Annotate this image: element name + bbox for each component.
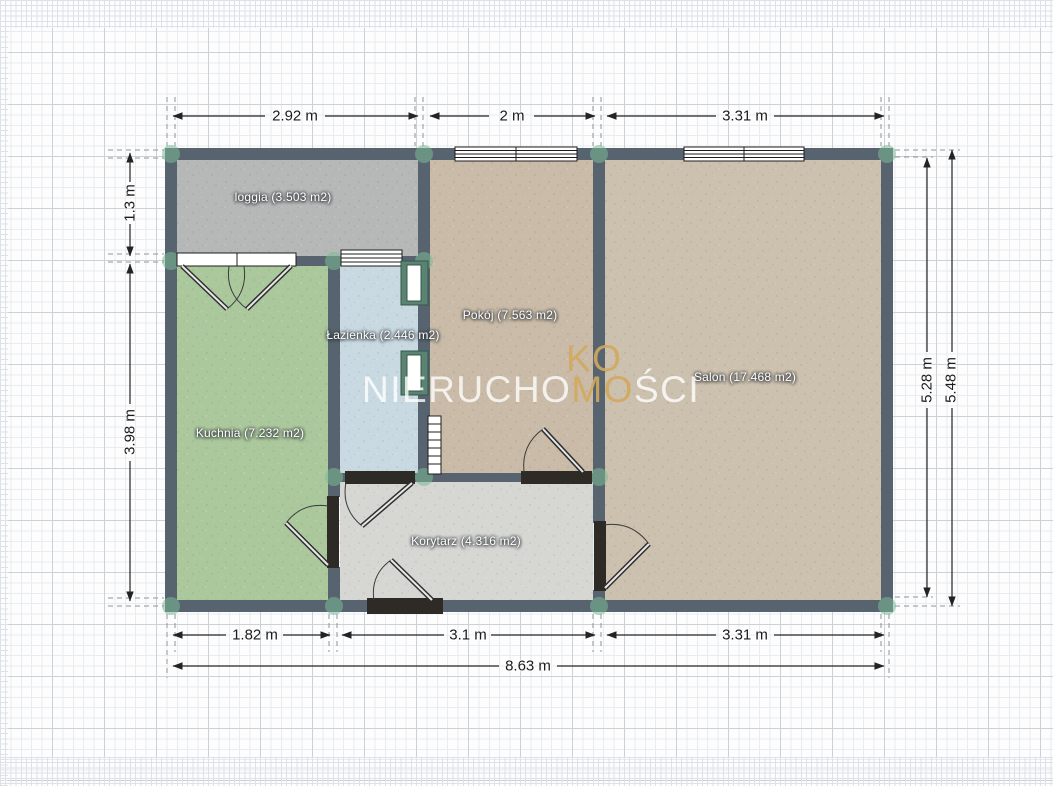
dim-label-left-1: 1.3 m xyxy=(122,184,139,222)
corner-accent xyxy=(325,597,343,615)
corner-accent xyxy=(590,468,608,486)
dim-label-top-1: 2.92 m xyxy=(272,108,318,125)
floorplan-canvas[interactable]: loggia (3.503 m2) Kuchnia (7.232 m2) Łaz… xyxy=(0,0,1053,786)
corner-accent xyxy=(590,145,608,163)
corner-accent xyxy=(162,145,180,163)
dim-label-right-1: 5.28 m xyxy=(919,357,936,403)
wall-outer-right[interactable] xyxy=(881,148,893,612)
dim-label-top-2: 2 m xyxy=(499,108,524,125)
wall-outer-bottom[interactable] xyxy=(165,600,893,612)
corner-accent xyxy=(590,597,608,615)
balcony-door-kuchnia[interactable] xyxy=(177,253,296,266)
window-pokoj-top[interactable] xyxy=(455,147,577,161)
dim-label-total: 8.63 m xyxy=(505,658,551,675)
dim-label-bottom-1: 1.82 m xyxy=(232,627,278,644)
corner-accent xyxy=(162,597,180,615)
corner-accent xyxy=(325,468,343,486)
window-lazienka[interactable] xyxy=(341,250,402,266)
dim-label-right-2: 5.48 m xyxy=(943,357,960,403)
dim-label-bottom-2: 3.1 m xyxy=(449,627,487,644)
dim-label-bottom-3: 3.31 m xyxy=(722,627,768,644)
room-label-pokoj: Pokój (7.563 m2) xyxy=(463,308,558,322)
room-label-salon: Salon (17.468 m2) xyxy=(694,370,796,384)
dim-label-left-2: 3.98 m xyxy=(122,409,139,455)
wall-outer-left[interactable] xyxy=(165,148,177,612)
corner-accent xyxy=(878,597,896,615)
window-salon-top[interactable] xyxy=(684,147,804,161)
radiator-pokoj[interactable] xyxy=(428,416,441,474)
room-label-lazienka: Łazienka (2.446 m2) xyxy=(326,328,439,342)
dim-label-top-3: 3.31 m xyxy=(722,108,768,125)
wall-salon-left-upper[interactable] xyxy=(593,148,605,523)
room-label-kuchnia: Kuchnia (7.232 m2) xyxy=(196,426,304,440)
room-label-loggia: loggia (3.503 m2) xyxy=(235,190,332,204)
niche-lazienka-lower[interactable] xyxy=(401,351,428,395)
wall-kuchnia-right-upper[interactable] xyxy=(328,266,340,497)
corner-accent xyxy=(415,145,433,163)
niche-lazienka-upper[interactable] xyxy=(401,261,428,305)
corner-accent xyxy=(878,145,896,163)
room-label-korytarz: Korytarz (4.316 m2) xyxy=(411,534,521,548)
corner-accent xyxy=(325,252,343,270)
